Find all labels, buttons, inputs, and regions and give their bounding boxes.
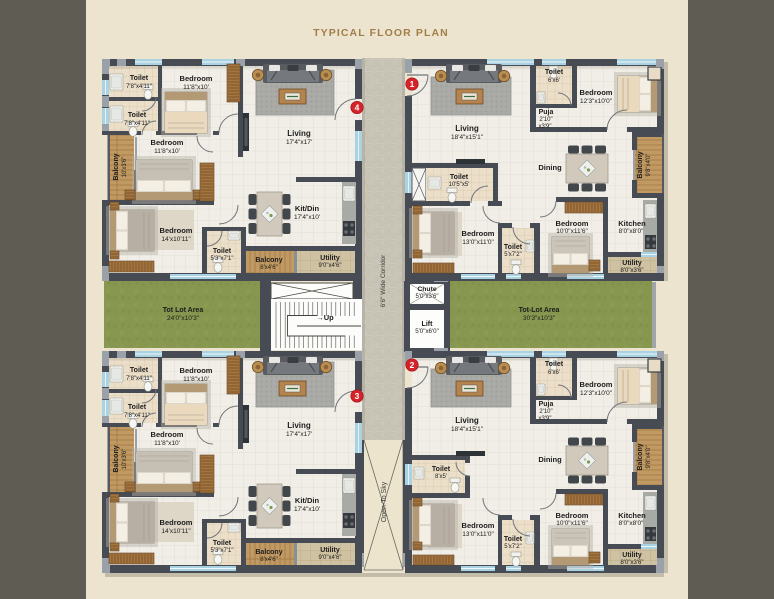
svg-text:6'6" Wide Corridor: 6'6" Wide Corridor: [380, 254, 387, 308]
svg-text:9'8"x4'0": 9'8"x4'0": [646, 446, 652, 469]
svg-text:8'0"x3'6": 8'0"x3'6": [621, 560, 644, 566]
svg-text:Bedroom: Bedroom: [160, 226, 193, 235]
svg-text:Kit/Din: Kit/Din: [295, 496, 320, 505]
svg-text:Toilet: Toilet: [130, 367, 149, 374]
svg-text:1: 1: [410, 79, 415, 89]
svg-text:5'0"x6'0": 5'0"x6'0": [415, 328, 439, 335]
svg-text:Bedroom: Bedroom: [180, 366, 213, 375]
svg-text:Balcony: Balcony: [637, 151, 644, 178]
svg-text:x3'9": x3'9": [539, 416, 552, 422]
svg-text:Balcony: Balcony: [255, 549, 282, 556]
svg-text:Lift: Lift: [422, 321, 434, 328]
svg-text:Bedroom: Bedroom: [556, 219, 589, 228]
svg-text:Bedroom: Bedroom: [556, 511, 589, 520]
svg-text:Balcony: Balcony: [637, 443, 644, 470]
svg-text:Toilet: Toilet: [504, 244, 523, 251]
svg-text:30'3"x10'3": 30'3"x10'3": [523, 315, 556, 322]
svg-text:5'3"x7'1": 5'3"x7'1": [211, 256, 234, 262]
svg-text:Toilet: Toilet: [432, 466, 451, 473]
svg-text:2'10": 2'10": [539, 409, 552, 415]
svg-text:3: 3: [355, 391, 360, 401]
svg-text:Toilet: Toilet: [504, 536, 523, 543]
svg-text:5'x7'2": 5'x7'2": [504, 252, 521, 258]
svg-text:Balcony: Balcony: [113, 445, 120, 472]
svg-text:Dining: Dining: [538, 163, 562, 172]
svg-text:Bedroom: Bedroom: [151, 430, 184, 439]
svg-text:10'5"x5': 10'5"x5': [449, 182, 470, 188]
svg-text:7'8"x4'11": 7'8"x4'11": [124, 121, 150, 127]
svg-text:7'8"x4'11": 7'8"x4'11": [124, 413, 150, 419]
svg-text:7'8"x4'11": 7'8"x4'11": [126, 84, 152, 90]
svg-text:Toilet: Toilet: [130, 75, 149, 82]
svg-text:Toilet: Toilet: [545, 361, 564, 368]
svg-text:Chute: Chute: [417, 286, 436, 293]
svg-text:Open-To Sky: Open-To Sky: [381, 481, 388, 522]
svg-text:Bedroom: Bedroom: [580, 380, 613, 389]
svg-text:Balcony: Balcony: [255, 257, 282, 264]
svg-text:10'x3'6": 10'x3'6": [122, 449, 128, 470]
svg-text:Toilet: Toilet: [128, 112, 147, 119]
svg-text:8'x4'6": 8'x4'6": [260, 265, 277, 271]
svg-text:10'0"x11'6": 10'0"x11'6": [556, 520, 588, 527]
svg-text:Kit/Din: Kit/Din: [295, 204, 320, 213]
svg-text:4: 4: [355, 102, 360, 112]
svg-text:TYPICAL FLOOR PLAN: TYPICAL FLOOR PLAN: [313, 27, 449, 39]
svg-text:17'4"x17': 17'4"x17': [286, 431, 312, 438]
svg-text:Bedroom: Bedroom: [160, 518, 193, 527]
svg-text:Living: Living: [287, 129, 311, 138]
svg-text:12'3"x10'0": 12'3"x10'0": [580, 390, 613, 397]
svg-text:Utility: Utility: [622, 260, 642, 267]
svg-text:8'x4'6": 8'x4'6": [260, 557, 277, 563]
svg-text:7'8"x4'11": 7'8"x4'11": [126, 376, 152, 382]
svg-text:13'0"x11'0": 13'0"x11'0": [462, 531, 494, 538]
svg-text:8'0"x8'0": 8'0"x8'0": [619, 520, 644, 527]
svg-text:11'8"x10': 11'8"x10': [183, 84, 209, 91]
svg-text:14'x10'11": 14'x10'11": [161, 236, 191, 243]
svg-text:Balcony: Balcony: [113, 153, 120, 180]
svg-text:Utility: Utility: [622, 552, 642, 559]
svg-text:Dining: Dining: [538, 455, 562, 464]
svg-text:Living: Living: [455, 416, 479, 425]
svg-text:Bedroom: Bedroom: [462, 229, 495, 238]
svg-text:Toilet: Toilet: [213, 540, 232, 547]
svg-text:8'0"x3'6": 8'0"x3'6": [621, 268, 644, 274]
svg-text:Toilet: Toilet: [128, 404, 147, 411]
svg-text:Bedroom: Bedroom: [151, 138, 184, 147]
svg-text:18'4"x15'1": 18'4"x15'1": [451, 134, 484, 141]
svg-text:→Up: →Up: [316, 313, 334, 322]
svg-text:Puja: Puja: [539, 401, 554, 408]
svg-text:Utility: Utility: [320, 547, 340, 554]
svg-text:Tot Lot Area: Tot Lot Area: [163, 307, 204, 314]
svg-text:9'0"x4'6": 9'0"x4'6": [319, 555, 342, 561]
svg-text:9'8"x4'0": 9'8"x4'0": [646, 154, 652, 177]
svg-text:Toilet: Toilet: [450, 174, 469, 181]
svg-text:10'x3'6": 10'x3'6": [122, 157, 128, 178]
svg-text:18'4"x15'1": 18'4"x15'1": [451, 426, 484, 433]
svg-text:12'3"x10'0": 12'3"x10'0": [580, 98, 613, 105]
svg-text:Puja: Puja: [539, 109, 554, 116]
svg-text:11'8"x10': 11'8"x10': [183, 376, 209, 383]
svg-text:2: 2: [410, 360, 415, 370]
svg-text:2'10": 2'10": [539, 117, 552, 123]
svg-text:17'4"x10': 17'4"x10': [294, 214, 320, 221]
svg-text:17'4"x10': 17'4"x10': [294, 506, 320, 513]
svg-text:Bedroom: Bedroom: [580, 88, 613, 97]
svg-text:Bedroom: Bedroom: [462, 521, 495, 530]
svg-text:Living: Living: [287, 421, 311, 430]
svg-text:10'0"x11'6": 10'0"x11'6": [556, 228, 588, 235]
svg-text:11'8"x10': 11'8"x10': [154, 148, 180, 155]
svg-text:24'0"x10'3": 24'0"x10'3": [167, 315, 200, 322]
svg-text:11'8"x10': 11'8"x10': [154, 440, 180, 447]
svg-text:5'3"x7'1": 5'3"x7'1": [211, 548, 234, 554]
svg-text:13'0"x11'0": 13'0"x11'0": [462, 239, 494, 246]
svg-text:Tot-Lot Area: Tot-Lot Area: [519, 307, 560, 314]
svg-text:x3'9": x3'9": [539, 124, 552, 130]
svg-text:17'4"x17': 17'4"x17': [286, 139, 312, 146]
svg-text:6'x6': 6'x6': [548, 370, 560, 376]
svg-text:8'0"x8'0": 8'0"x8'0": [619, 228, 644, 235]
svg-text:Toilet: Toilet: [213, 248, 232, 255]
svg-text:Toilet: Toilet: [545, 69, 564, 76]
svg-text:Kitchen: Kitchen: [618, 511, 646, 520]
svg-text:5'0"x3'6": 5'0"x3'6": [416, 294, 439, 300]
svg-text:Utility: Utility: [320, 255, 340, 262]
svg-text:5'x7'2": 5'x7'2": [504, 544, 521, 550]
svg-text:9'0"x4'6": 9'0"x4'6": [319, 263, 342, 269]
svg-text:14'x10'11": 14'x10'11": [161, 528, 191, 535]
svg-text:8'x5': 8'x5': [435, 474, 447, 480]
svg-text:Living: Living: [455, 124, 479, 133]
svg-text:6'x6': 6'x6': [548, 78, 560, 84]
svg-text:Kitchen: Kitchen: [618, 219, 646, 228]
svg-text:Bedroom: Bedroom: [180, 74, 213, 83]
